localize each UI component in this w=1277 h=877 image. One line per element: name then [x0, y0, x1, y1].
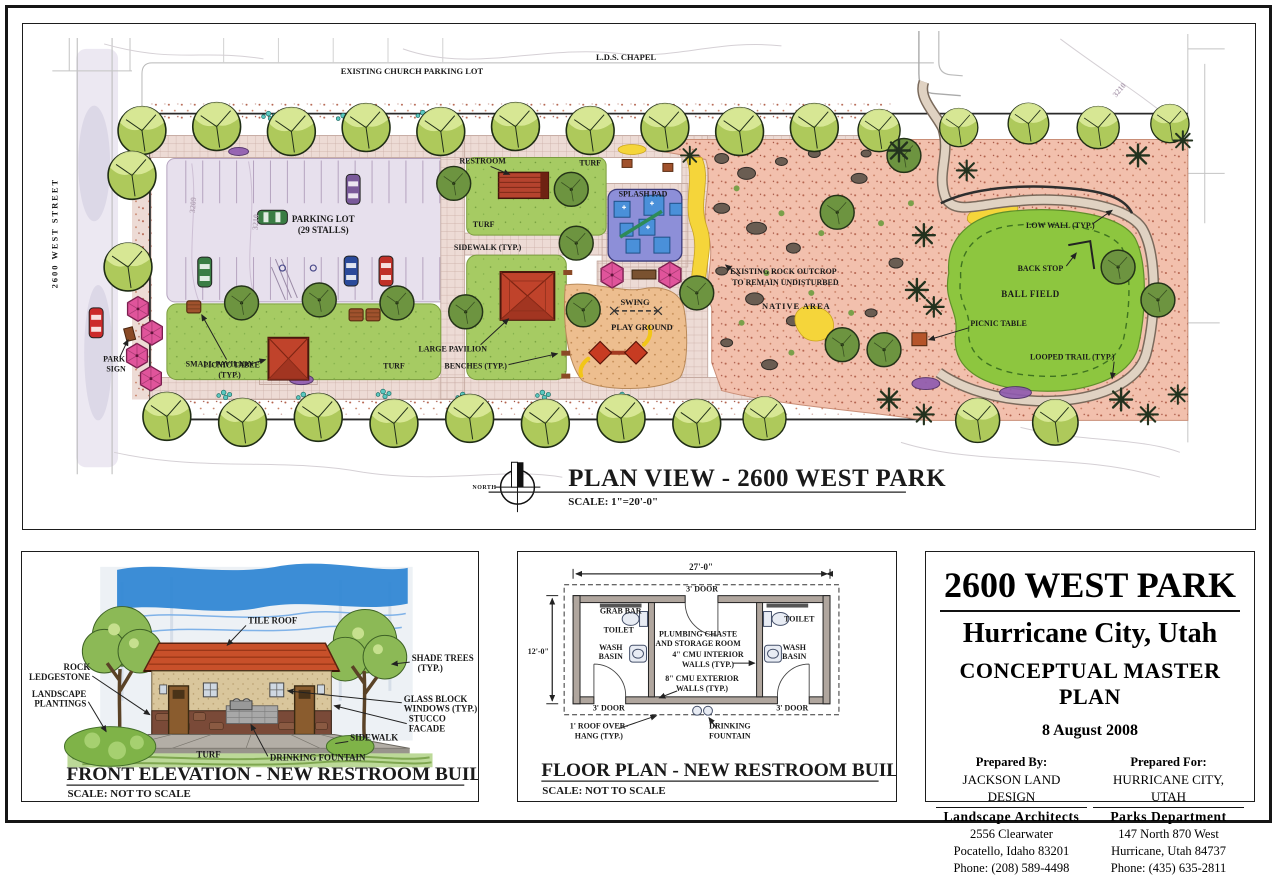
wash-left-label-2: BASIN — [599, 652, 623, 661]
prepared-for-phone: Phone: (435) 635-2811 — [1093, 860, 1244, 877]
prepared-for-block: Prepared For: HURRICANE CITY, UTAH Parks… — [1093, 754, 1244, 877]
shade-trees-label-1: SHADE TREES — [412, 653, 474, 663]
door-br-label: 3' DOOR — [776, 704, 808, 713]
contour-3209-label: 3209 — [188, 197, 198, 214]
sidewalk-elevation-label: SIDEWALK — [350, 732, 398, 742]
native-area-label: NATIVE AREA — [762, 301, 831, 311]
table — [632, 270, 656, 279]
prepared-by-name: JACKSON LAND DESIGN — [936, 771, 1087, 808]
landscape-label-2: PLANTINGS — [34, 699, 86, 709]
parking-lot-label: PARKING LOT — [292, 214, 355, 224]
outcrop-label-1: EXISTING ROCK OUTCROP — [730, 267, 837, 276]
street-car — [89, 308, 103, 338]
prepared-by-block: Prepared By: JACKSON LAND DESIGN Landsca… — [936, 754, 1087, 877]
prepared-for-address-1: 147 North 870 West — [1093, 826, 1244, 843]
toilet-right-label: TOILET — [784, 614, 815, 623]
park-sign-label-2: SIGN — [106, 365, 126, 374]
rock-label-2: LEDGESTONE — [29, 672, 90, 682]
cmu8-label-2: WALLS (TYP.) — [676, 684, 728, 693]
plumbing-label-2: AND STORAGE ROOM — [655, 639, 741, 648]
turf-label-1: TURF — [579, 158, 601, 167]
floor-plan-panel: 27'-0" 12'-0" 3' DOOR GRAB BAR TOILET TO… — [517, 551, 897, 802]
ball-field-label: BALL FIELD — [1001, 289, 1060, 299]
swing-label: SWING — [620, 297, 650, 307]
restroom-label: RESTROOM — [459, 156, 506, 165]
large-pavilion — [501, 272, 555, 320]
cmu4-label-1: 4" CMU INTERIOR — [672, 650, 744, 659]
prepared-by-label: Prepared By: — [936, 754, 1087, 771]
north-arrow-icon — [512, 462, 518, 487]
landscape-label-1: LANDSCAPE — [32, 689, 86, 699]
document-date: 8 August 2008 — [926, 722, 1254, 740]
prepared-for-role: Parks Department — [1093, 808, 1244, 826]
wash-right-label-2: BASIN — [782, 652, 806, 661]
large-pavilion-label: LARGE PAVILION — [419, 345, 488, 354]
drinking-fountain-unit — [230, 699, 252, 710]
small-pavilion-label: SMALL PAVILION — [186, 360, 254, 369]
prepared-by-address-2: Pocatello, Idaho 83201 — [936, 843, 1087, 860]
overhang-label-1: 1' ROOF OVER- — [570, 722, 629, 731]
document-type: CONCEPTUAL MASTER PLAN — [926, 658, 1254, 710]
prepared-for-address-2: Hurricane, Utah 84737 — [1093, 843, 1244, 860]
door-top-label: 3' DOOR — [686, 585, 718, 594]
street-label: 2600 WEST STREET — [49, 178, 59, 289]
north-label: NORTH — [472, 485, 496, 491]
small-pavilion — [268, 338, 308, 380]
toilet-left-label: TOILET — [604, 625, 635, 634]
splash-pad-label: SPLASH PAD — [619, 189, 668, 198]
contour-3210-label: 3210 — [251, 214, 261, 231]
project-city: Hurricane City, Utah — [926, 618, 1254, 650]
parking-stalls-label: (29 STALLS) — [298, 225, 349, 235]
contour-3210-topright: 3210 — [1111, 81, 1128, 99]
cmu4-label-2: WALLS (TYP.) — [682, 660, 734, 669]
grab-bar-label: GRAB BAR — [600, 607, 642, 616]
plan-title: PLAN VIEW - 2600 WEST PARK — [568, 465, 946, 492]
overhang-label-2: HANG (TYP.) — [575, 732, 623, 741]
turf-elevation-label: TURF — [196, 749, 221, 759]
restroom-building-elevation — [144, 643, 339, 734]
prepared-for-name: HURRICANE CITY, UTAH — [1093, 771, 1244, 808]
bench — [561, 351, 570, 356]
outcrop-label-2: TO REMAIN UNDISTURBED — [732, 278, 839, 287]
bench — [561, 374, 570, 379]
looped-trail-label: LOOPED TRAIL (TYP.) — [1030, 353, 1115, 362]
playground-label: PLAY GROUND — [611, 322, 673, 332]
master-plan-sheet: { "plan": { "street": "2600 WEST STREET"… — [0, 0, 1277, 828]
project-title: 2600 WEST PARK — [940, 564, 1240, 612]
prepared-by-role: Landscape Architects — [936, 808, 1087, 826]
floor-title: FLOOR PLAN - NEW RESTROOM BUILDING SCALE… — [541, 760, 896, 797]
fountain-label-2: FOUNTAIN — [709, 732, 751, 741]
lds-chapel-label: L.D.S. CHAPEL — [596, 52, 656, 62]
tile-roof-label: TILE ROOF — [248, 615, 298, 625]
glass-block-label-1: GLASS BLOCK — [404, 694, 468, 704]
height-dimension: 12'-0" — [528, 647, 549, 656]
prepared-by-phone: Phone: (208) 589-4498 — [936, 860, 1087, 877]
rock-label-1: ROCK — [64, 662, 91, 672]
plumbing-label-1: PLUMBING CHASTE — [659, 629, 737, 638]
back-stop-label: BACK STOP — [1018, 264, 1064, 273]
floor-plan-drawing: 27'-0" 12'-0" 3' DOOR GRAB BAR TOILET TO… — [518, 552, 896, 801]
stucco-label-1: STUCCO — [409, 714, 446, 724]
title-block-panel: 2600 WEST PARK Hurricane City, Utah CONC… — [925, 551, 1255, 802]
grab-bar-right — [767, 604, 809, 608]
prepared-by-address-1: 2556 Clearwater — [936, 826, 1087, 843]
bench — [563, 270, 572, 275]
church-parking-label: EXISTING CHURCH PARKING LOT — [341, 66, 484, 76]
elevation-scale-text: SCALE: NOT TO SCALE — [67, 788, 190, 800]
plan-view-panel: PARKING LOT (29 STALLS) 3209 3210 — [22, 23, 1256, 530]
stucco-label-2: FACADE — [409, 724, 446, 734]
drinking-fountain-label: DRINKING FOUNTAIN — [270, 752, 366, 762]
sidewalk-label: SIDEWALK (TYP.) — [454, 243, 522, 252]
benches-label: BENCHES (TYP.) — [444, 362, 507, 371]
floor-title-text: FLOOR PLAN - NEW RESTROOM BUILDING — [541, 760, 896, 781]
shade-trees-label-2: (TYP.) — [418, 663, 443, 673]
front-elevation-panel: TILE ROOF ROCK LEDGESTONE LANDSCAPE PLAN… — [21, 551, 479, 802]
low-wall-label: LOW WALL (TYP.) — [1026, 221, 1095, 230]
glass-block-label-2: WINDOWS (TYP.) — [404, 704, 477, 714]
door-bl-label: 3' DOOR — [593, 704, 625, 713]
plan-view-drawing: PARKING LOT (29 STALLS) 3209 3210 — [23, 24, 1255, 529]
elevation-title: FRONT ELEVATION - NEW RESTROOM BUILDING … — [66, 764, 478, 800]
picnic-typ-label-2: (TYP.) — [218, 371, 241, 380]
prepared-for-label: Prepared For: — [1093, 754, 1244, 771]
wash-right-label-1: WASH — [783, 643, 807, 652]
park-sign-label-1: PARK — [103, 355, 126, 364]
turf-label-2: TURF — [473, 220, 495, 229]
picnic-table-label: PICNIC TABLE — [970, 319, 1027, 328]
native-picnic-table — [912, 333, 927, 346]
elevation-title-text: FRONT ELEVATION - NEW RESTROOM BUILDING — [66, 764, 478, 785]
cmu8-label-1: 8" CMU EXTERIOR — [665, 674, 739, 683]
parking-lot: PARKING LOT (29 STALLS) 3209 3210 — [167, 158, 461, 301]
wash-left-label-1: WASH — [599, 643, 623, 652]
width-dimension: 27'-0" — [689, 562, 713, 572]
floor-scale-text: SCALE: NOT TO SCALE — [542, 785, 665, 797]
turf-label-3: TURF — [383, 362, 405, 371]
front-elevation-drawing: TILE ROOF ROCK LEDGESTONE LANDSCAPE PLAN… — [22, 552, 478, 801]
plan-scale: SCALE: 1"=20'-0" — [568, 496, 658, 508]
plan-title-block: NORTH PLAN VIEW - 2600 WEST PARK SCALE: … — [472, 462, 946, 512]
